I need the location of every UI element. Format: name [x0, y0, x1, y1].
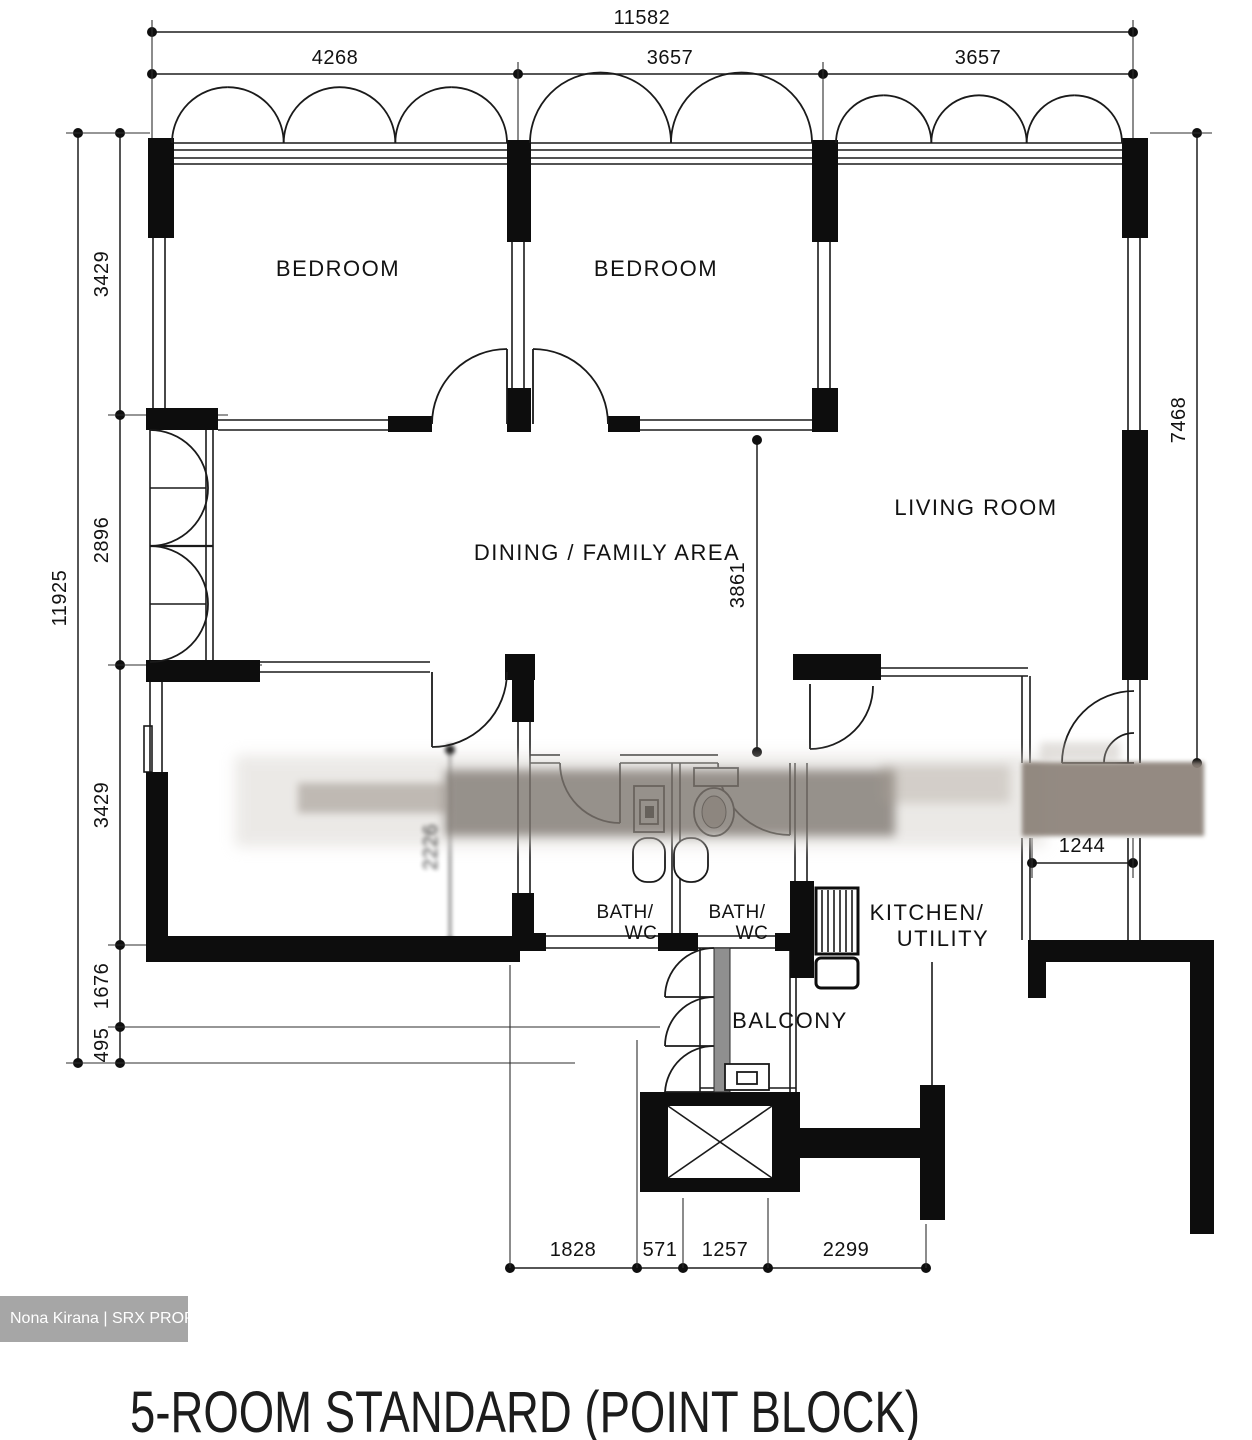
room-label-bath1-line1: BATH/: [596, 902, 653, 923]
dim-left-seg1: 3429: [91, 251, 113, 298]
room-label-bedroom-1: BEDROOM: [276, 256, 400, 281]
dim-left-seg5: 495: [91, 1028, 113, 1063]
room-label-bath1-line2: WC: [625, 923, 658, 944]
room-label-balcony: BALCONY: [732, 1008, 848, 1033]
room-label-bath2-line1: BATH/: [708, 902, 765, 923]
dim-bottom-seg4: 2299: [823, 1239, 870, 1261]
dim-top-total: 11582: [614, 7, 671, 29]
dim-bottom-seg3: 1257: [702, 1239, 749, 1261]
watermark-text: Nona Kirana | SRX PROPERTY: [0, 1310, 237, 1328]
dim-right-total: 7468: [1168, 397, 1190, 444]
dim-left-seg2: 2896: [91, 517, 113, 564]
dim-bottom-seg1: 1828: [550, 1239, 597, 1261]
dim-top-seg2: 3657: [647, 47, 694, 69]
dimension-lines: [66, 20, 1212, 1273]
dim-top-seg1: 4268: [312, 47, 359, 69]
dim-left-seg4: 1676: [91, 963, 113, 1010]
room-label-dining: DINING / FAMILY AREA: [474, 540, 740, 565]
floor-plan-drawing: 11582 4268 3657 3657 11925 3429 2896 342…: [0, 0, 1252, 1440]
floor-plan-page: 11582 4268 3657 3657 11925 3429 2896 342…: [0, 0, 1252, 1440]
balcony-sink-icon: [725, 1064, 769, 1090]
room-label-living-room: LIVING ROOM: [894, 495, 1057, 520]
dim-interior-depth: 3861: [727, 562, 749, 609]
walls-black: [146, 138, 1214, 1234]
labels: 11582 4268 3657 3657 11925 3429 2896 342…: [49, 7, 1190, 1261]
room-label-kitchen-line2: UTILITY: [897, 926, 989, 951]
blur-smudges: [235, 742, 1204, 847]
room-label-kitchen-line1: KITCHEN/: [870, 900, 985, 925]
watermark-badge: Nona Kirana | SRX PROPERTY: [0, 1296, 188, 1342]
dim-left-seg3: 3429: [91, 782, 113, 829]
room-label-bath2-line2: WC: [736, 923, 769, 944]
room-label-bedroom-2: BEDROOM: [594, 256, 718, 281]
plan-title: 5-ROOM STANDARD (POINT BLOCK): [130, 1380, 920, 1440]
dim-bottom-seg2: 571: [643, 1239, 678, 1261]
dim-interior-blurred: 2226: [420, 824, 442, 871]
dim-left-total: 11925: [49, 570, 71, 627]
dim-top-seg3: 3657: [955, 47, 1002, 69]
dim-interior-right: 1244: [1059, 835, 1106, 857]
service-duct-icon: [816, 888, 858, 988]
